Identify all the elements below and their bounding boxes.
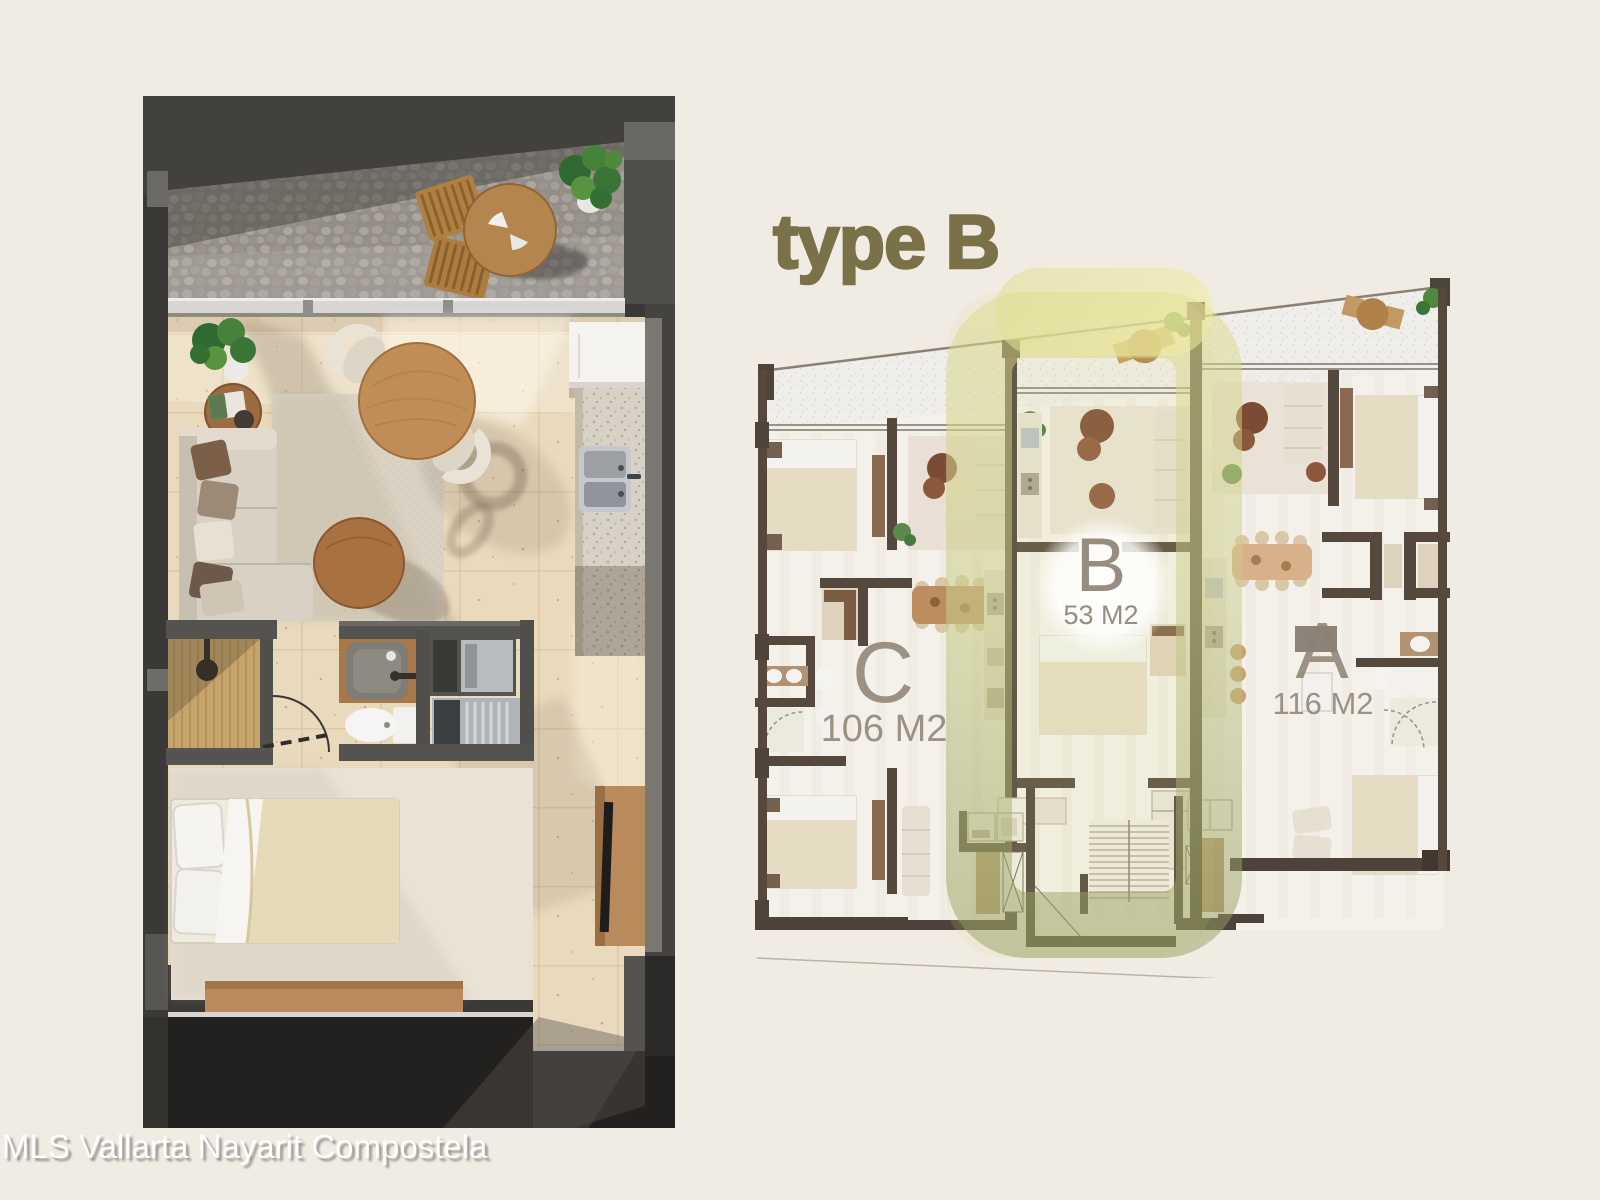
svg-text:C: C bbox=[852, 625, 914, 721]
svg-text:B: B bbox=[1076, 523, 1127, 608]
svg-text:A: A bbox=[1295, 606, 1349, 695]
svg-text:53 M2: 53 M2 bbox=[1063, 600, 1138, 630]
svg-text:116 M2: 116 M2 bbox=[1272, 686, 1373, 721]
svg-text:106 M2: 106 M2 bbox=[821, 708, 948, 750]
